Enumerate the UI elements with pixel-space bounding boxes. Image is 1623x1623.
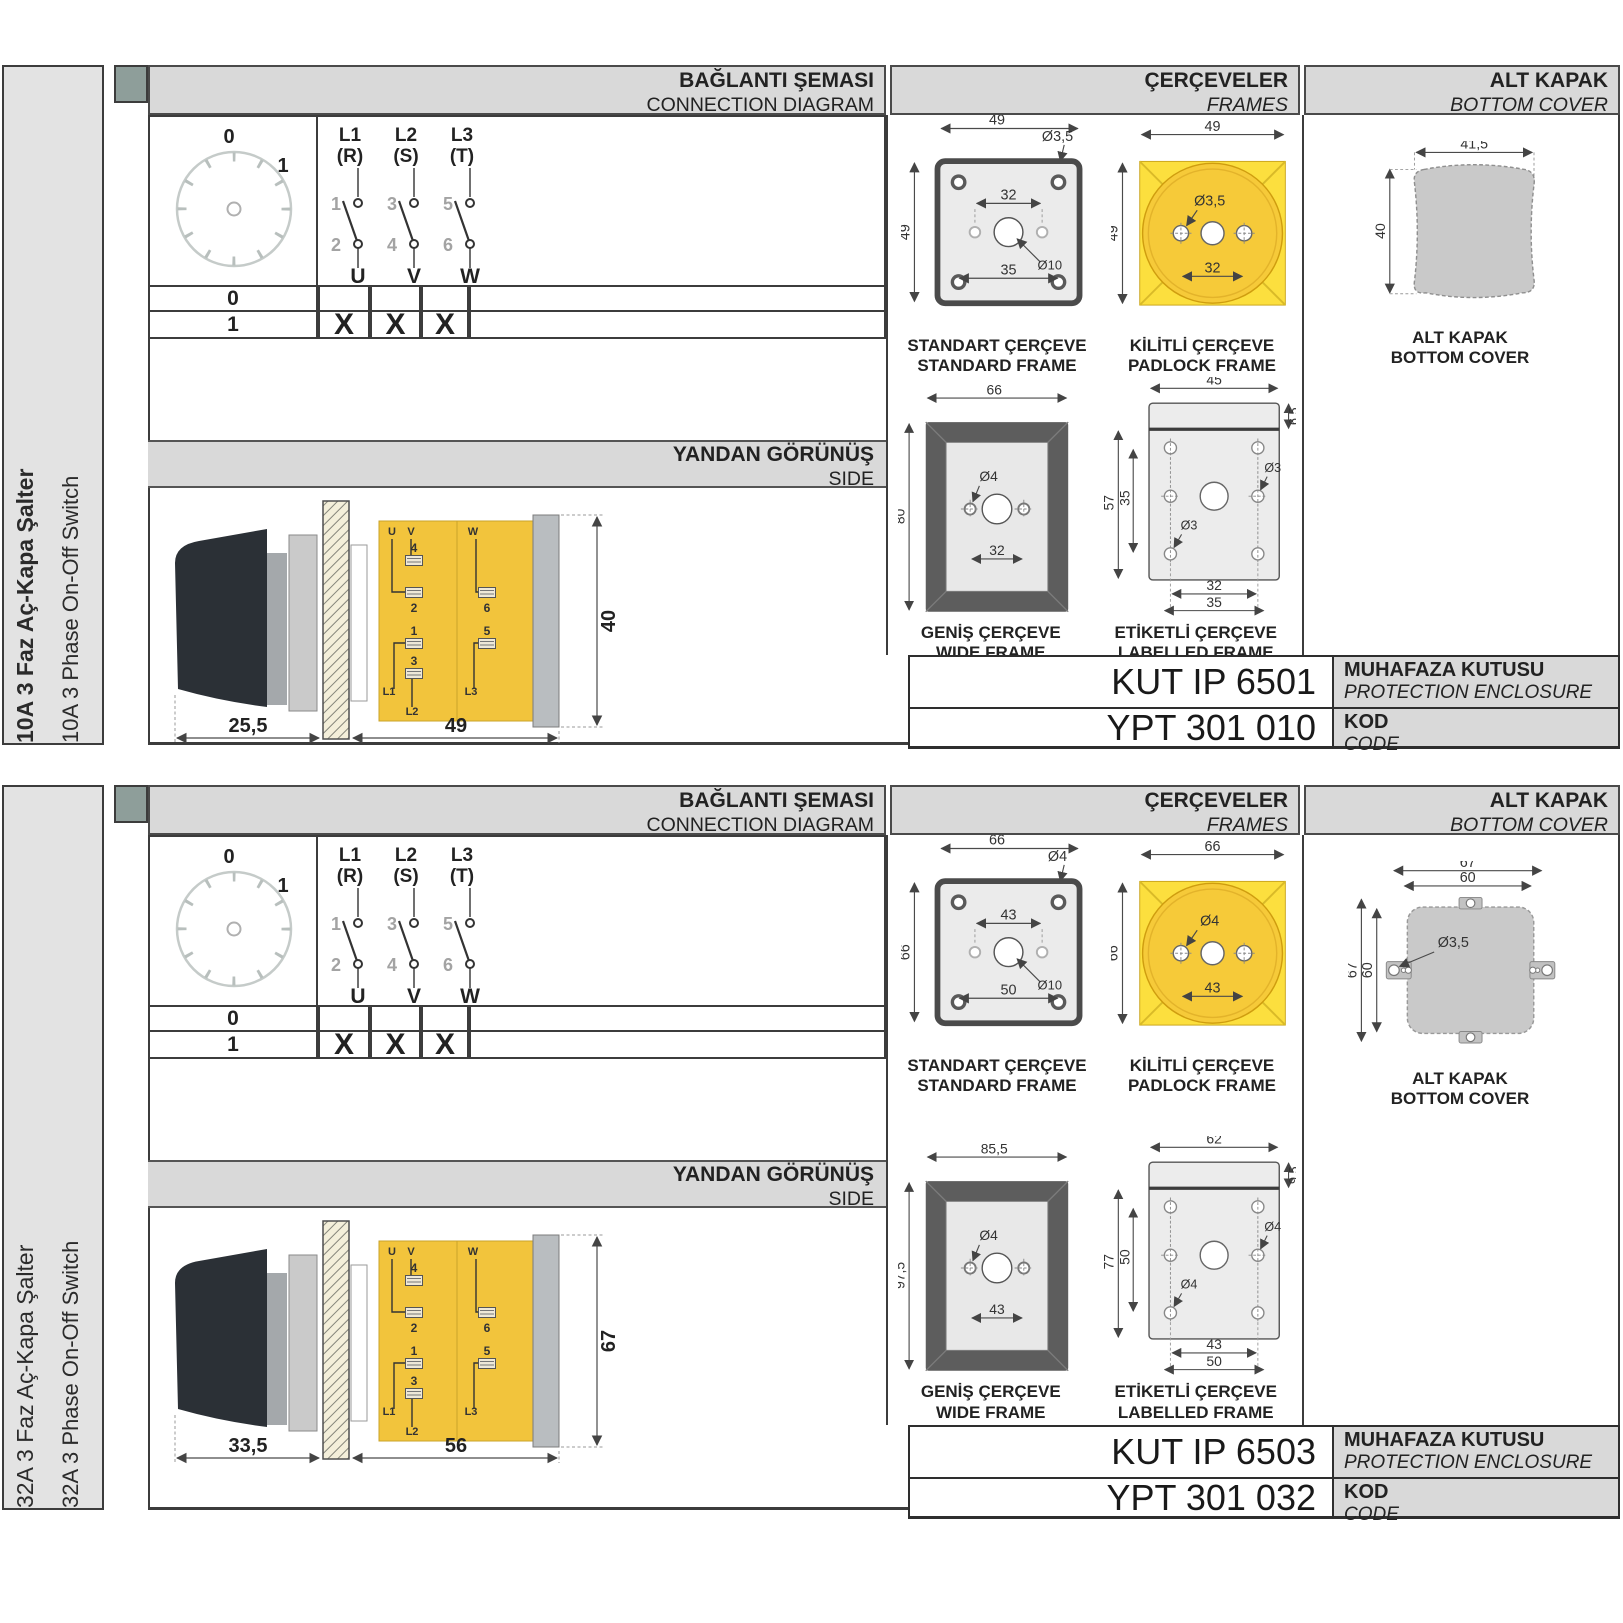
bottom-cover-figure: 41,5 40 41,5 40 (1308, 123, 1612, 369)
caption-en: PADLOCK FRAME (1111, 356, 1293, 376)
dim-label: 66 (1111, 945, 1122, 961)
dim-label: Ø4 (1200, 913, 1219, 929)
standard-frame-figure: 66 Ø4 66 43 Ø10 (901, 835, 1093, 1097)
divider-connection-frames (886, 835, 888, 1425)
header-frames: ÇERÇEVELER FRAMES (890, 785, 1300, 835)
dim-label: 32 (1205, 261, 1221, 277)
code-label: KOD CODE (1332, 1479, 1618, 1516)
dim-label: 66 (901, 944, 914, 960)
section-10a-switch: 10A 3 Faz Aç-Kapa Şalter 10A 3 Phase On-… (0, 65, 1623, 745)
caption-en: LABELLED FRAME (1096, 1403, 1296, 1423)
section-32a-switch: 32A 3 Faz Aç-Kapa Şalter 32A 3 Phase On-… (0, 785, 1623, 1510)
row-label: 0 (148, 285, 318, 312)
caption-tr: GENİŞ ÇERÇEVE (898, 623, 1083, 643)
panel-hatched (323, 501, 349, 739)
dim-label: 85,5 (981, 1144, 1008, 1156)
figure-caption: STANDART ÇERÇEVE STANDARD FRAME (901, 336, 1093, 377)
sidebar-title-english: 32A 3 Phase On-Off Switch (58, 787, 84, 1508)
dim-width: 56 (445, 1435, 467, 1457)
table-cell (469, 285, 886, 312)
contact-pole-3: L3 (T) 5 6 W (443, 125, 480, 285)
dim-label: 50 (1001, 982, 1017, 998)
padlock-frame-figure: 66 66 Ø4 (1111, 841, 1293, 1097)
padlock-frame-figure: 49 49 Ø3,5 (1111, 121, 1293, 377)
terminal-number: 2 (411, 601, 418, 615)
enclosure-code: KUT IP 6503 (910, 1427, 1332, 1477)
terminal-number: 1 (331, 914, 341, 934)
dim-label: 62 (1206, 1136, 1222, 1147)
product-code: YPT 301 010 (910, 709, 1332, 746)
caption-tr: STANDART ÇERÇEVE (901, 336, 1093, 356)
dim-label: 77 (1100, 1254, 1116, 1270)
frames-figures: 49 Ø3,5 49 32 Ø10 (892, 115, 1302, 655)
padlock-frame-drawing: 49 49 Ø3,5 (1111, 121, 1293, 334)
rotary-dial-diagram: 0 1 (150, 837, 316, 1005)
dim-label: 43 (1206, 1336, 1222, 1352)
caption-tr: ALT KAPAK (1308, 1069, 1612, 1089)
side-view-drawing: U V W 4 2 1 3 6 5 L1 L2 L3 40 2 (165, 495, 725, 747)
dim-label: 66 (1205, 841, 1221, 855)
dim-label: 6,5 (1287, 407, 1296, 424)
caption-en: BOTTOM COVER (1308, 348, 1612, 368)
header-connection-tr: BAĞLANTI ŞEMASI (150, 789, 874, 814)
catalog-page: { "s0": { "sidebar": { "tr": "10A 3 Faz … (0, 0, 1623, 1623)
caption-en: BOTTOM COVER (1308, 1089, 1612, 1109)
dial-position-0: 0 (223, 126, 234, 148)
switch-handle (175, 529, 267, 707)
terminal-number: 2 (331, 235, 341, 255)
terminal-number: 2 (411, 1321, 418, 1335)
header-cover-tr: ALT KAPAK (1306, 69, 1608, 94)
terminal-number: 4 (387, 955, 397, 975)
terminal-label: W (468, 1246, 479, 1258)
terminal-number: 4 (411, 1261, 418, 1275)
contact-pole-2: L2 (S) 3 4 V (387, 845, 421, 1005)
wide-frame-drawing: 85,5 97,5 Ø4 43 (898, 1144, 1083, 1380)
caption-en: WIDE FRAME (898, 1403, 1083, 1423)
terminal-label: V (407, 526, 415, 538)
dim-depth: 25,5 (229, 715, 268, 737)
output-label: W (460, 265, 480, 285)
terminal-number: 6 (443, 955, 453, 975)
dim-label: Ø10 (1038, 978, 1062, 993)
bottom-cover-drawing: 41,5 40 (1355, 141, 1565, 326)
contact-pole-3: L3 (T) 5 6 W (443, 845, 480, 1005)
x-mark: X (421, 310, 469, 339)
code-label-tr: KOD (1344, 711, 1618, 734)
end-cap (533, 1235, 559, 1447)
terminal-label: U (388, 526, 396, 538)
enclosure-label-en: PROTECTION ENCLOSURE (1344, 1452, 1618, 1474)
x-mark: X (421, 1030, 469, 1059)
terminal-number: 4 (411, 541, 418, 555)
enclosure-label-tr: MUHAFAZA KUTUSU (1344, 659, 1618, 682)
terminal-label: L2 (406, 706, 419, 718)
side-header-tr: YANDAN GÖRÜNÜŞ (148, 443, 874, 468)
terminal-number: 4 (387, 235, 397, 255)
code-label: KOD CODE (1332, 709, 1618, 746)
truth-table-row-0: 0 (148, 1005, 886, 1032)
header-side-view: YANDAN GÖRÜNÜŞ SIDE (148, 1160, 886, 1208)
dim-label: 43 (990, 1301, 1006, 1317)
pole-label: (T) (450, 146, 474, 167)
product-code: YPT 301 032 (910, 1479, 1332, 1516)
contacts-box: L1 (R) 1 2 U L2 (S) 3 4 (316, 115, 886, 287)
code-label-tr: KOD (1344, 1481, 1618, 1504)
output-label: U (350, 985, 365, 1005)
header-bottom-cover: ALT KAPAK BOTTOM COVER (1304, 65, 1620, 115)
dial-position-1: 1 (277, 155, 288, 177)
figure-caption: KİLİTLİ ÇERÇEVE PADLOCK FRAME (1111, 336, 1293, 377)
divider-frames-cover (1302, 115, 1304, 655)
terminal-label: L1 (383, 1406, 396, 1418)
truth-table-row-1: 1 X X X (148, 310, 886, 339)
terminal-label: L1 (383, 686, 396, 698)
standard-frame-figure: 49 Ø3,5 49 32 Ø10 (901, 115, 1093, 377)
enclosure-row: KUT IP 6501 MUHAFAZA KUTUSU PROTECTION E… (908, 655, 1620, 709)
dim-label: 32 (990, 542, 1006, 558)
dim-label: Ø4 (1048, 849, 1067, 865)
terminal-number: 6 (484, 1321, 491, 1335)
cover-outline (1414, 165, 1534, 298)
divider-frames-cover (1302, 835, 1304, 1425)
dim-width: 49 (445, 715, 467, 737)
caption-en: STANDARD FRAME (901, 356, 1093, 376)
dim-label: Ø3,5 (1194, 193, 1225, 209)
terminal-number: 5 (484, 624, 491, 638)
terminal-label: L3 (465, 686, 478, 698)
sidebar: 32A 3 Faz Aç-Kapa Şalter 32A 3 Phase On-… (2, 785, 104, 1510)
dim-label: 57 (1100, 495, 1116, 511)
enclosure-label: MUHAFAZA KUTUSU PROTECTION ENCLOSURE (1332, 657, 1618, 707)
rotary-dial-diagram: 0 1 (150, 117, 316, 285)
dim-label: Ø3 (1264, 461, 1281, 475)
pole-label: L3 (451, 125, 473, 146)
row-label: 1 (148, 1030, 318, 1059)
truth-table-row-1: 1 X X X (148, 1030, 886, 1059)
figure-caption: GENİŞ ÇERÇEVE WIDE FRAME (898, 1382, 1083, 1423)
header-frames-en: FRAMES (892, 94, 1288, 117)
divider-connection-frames (886, 115, 888, 655)
side-header-en: SIDE (148, 468, 874, 491)
dim-label: Ø3 (1180, 518, 1197, 532)
terminal-label: W (468, 526, 479, 538)
dim-label: Ø4 (1264, 1220, 1281, 1234)
terminal-label: L2 (406, 1426, 419, 1438)
terminal-number: 6 (484, 601, 491, 615)
terminal-number: 3 (387, 194, 397, 214)
header-frames: ÇERÇEVELER FRAMES (890, 65, 1300, 115)
contact-pole-2: L2 (S) 3 4 V (387, 125, 421, 285)
x-mark: X (318, 310, 370, 339)
caption-tr: ETİKETLİ ÇERÇEVE (1096, 1382, 1296, 1402)
dim-label: 45 (1206, 377, 1222, 388)
product-codes-table: KUT IP 6501 MUHAFAZA KUTUSU PROTECTION E… (908, 655, 1620, 749)
dim-label: 80 (898, 508, 907, 524)
dim-depth: 33,5 (229, 1435, 268, 1457)
standard-frame-drawing: 49 Ø3,5 49 32 Ø10 (901, 115, 1093, 334)
side-view-drawing: U V W 4 2 1 3 6 5 L1 L2 L3 67 3 (165, 1215, 725, 1467)
dial-position-0: 0 (223, 846, 234, 868)
dim-label: 60 (1459, 870, 1475, 886)
header-cover-en: BOTTOM COVER (1306, 94, 1608, 117)
dim-label: 9,5 (1287, 1167, 1296, 1184)
panel-hatched (323, 1221, 349, 1459)
padlock-frame-drawing: 66 66 Ø4 (1111, 841, 1293, 1054)
side-header-tr: YANDAN GÖRÜNÜŞ (148, 1163, 874, 1188)
pole-label: L2 (395, 125, 417, 146)
dim-label: 49 (989, 115, 1005, 129)
output-label: V (407, 265, 421, 285)
terminal-number: 5 (443, 194, 453, 214)
caption-tr: KİLİTLİ ÇERÇEVE (1111, 336, 1293, 356)
row-label: 1 (148, 310, 318, 339)
terminal-number: 3 (387, 914, 397, 934)
dial-position-1: 1 (277, 875, 288, 897)
header-connection-en: CONNECTION DIAGRAM (150, 94, 874, 117)
sidebar-title-turkish: 32A 3 Faz Aç-Kapa Şalter (12, 787, 39, 1508)
dim-label: 66 (987, 385, 1003, 397)
dim-height: 67 (598, 1330, 620, 1352)
truth-table-row-0: 0 (148, 285, 886, 312)
wide-frame-figure: 85,5 97,5 Ø4 43 (898, 1144, 1083, 1423)
dim-label: Ø10 (1038, 258, 1062, 273)
dim-label: 67 (1348, 962, 1361, 978)
caption-tr: ALT KAPAK (1308, 328, 1612, 348)
sidebar-title-english: 10A 3 Phase On-Off Switch (58, 67, 84, 743)
corner-marker-square (114, 65, 148, 103)
caption-tr: GENİŞ ÇERÇEVE (898, 1382, 1083, 1402)
code-label-en: CODE (1344, 734, 1618, 756)
frames-figures: 66 Ø4 66 43 Ø10 (892, 835, 1302, 1423)
header-connection-tr: BAĞLANTI ŞEMASI (150, 69, 874, 94)
caption-tr: ETİKETLİ ÇERÇEVE (1096, 623, 1296, 643)
standard-frame-drawing: 66 Ø4 66 43 Ø10 (901, 835, 1093, 1054)
caption-tr: STANDART ÇERÇEVE (901, 1056, 1093, 1076)
code-label-en: CODE (1344, 1504, 1618, 1526)
dim-label: 66 (989, 835, 1005, 849)
wide-frame-figure: 66 80 Ø4 32 (898, 385, 1083, 664)
rotary-dial-box: 0 1 (148, 115, 318, 287)
code-row: YPT 301 010 KOD CODE (908, 709, 1620, 749)
dim-label: 32 (1001, 188, 1017, 204)
caption-en: PADLOCK FRAME (1111, 1076, 1293, 1096)
terminal-label: V (407, 1246, 415, 1258)
figure-caption: KİLİTLİ ÇERÇEVE PADLOCK FRAME (1111, 1056, 1293, 1097)
dim-label: 32 (1206, 577, 1222, 593)
dim-label: 41,5 (1460, 141, 1488, 153)
terminal-number: 5 (443, 914, 453, 934)
caption-en: STANDARD FRAME (901, 1076, 1093, 1096)
terminal-number: 6 (443, 235, 453, 255)
pole-label: L3 (451, 845, 473, 866)
mounting-plate (289, 535, 317, 711)
switch-body (379, 521, 533, 721)
header-frames-tr: ÇERÇEVELER (892, 789, 1288, 814)
caption-tr: KİLİTLİ ÇERÇEVE (1111, 1056, 1293, 1076)
labelled-frame-figure: 45 6,5 57 35 (1096, 377, 1296, 664)
dim-label: 50 (1206, 1353, 1222, 1369)
labelled-frame-figure: 62 9,5 77 50 (1096, 1136, 1296, 1423)
dim-label: 35 (1206, 594, 1222, 610)
labelled-frame-drawing: 62 9,5 77 50 (1096, 1136, 1296, 1380)
header-cover-en: BOTTOM COVER (1306, 814, 1608, 837)
enclosure-label-en: PROTECTION ENCLOSURE (1344, 682, 1618, 704)
terminal-number: 1 (411, 1344, 418, 1358)
output-label: U (350, 265, 365, 285)
labelled-frame-drawing: 45 6,5 57 35 (1096, 377, 1296, 621)
rotary-dial-box: 0 1 (148, 835, 318, 1007)
mounting-plate (289, 1255, 317, 1431)
dim-label: Ø4 (980, 468, 999, 484)
dim-label: 49 (901, 224, 914, 240)
enclosure-label: MUHAFAZA KUTUSU PROTECTION ENCLOSURE (1332, 1427, 1618, 1477)
header-cover-tr: ALT KAPAK (1306, 789, 1608, 814)
pole-label: (R) (337, 866, 363, 887)
enclosure-label-tr: MUHAFAZA KUTUSU (1344, 1429, 1618, 1452)
x-mark: X (318, 1030, 370, 1059)
switch-body (379, 1241, 533, 1441)
switch-contacts-diagram: L1 (R) 1 2 U L2 (S) 3 4 (318, 837, 884, 1005)
header-frames-en: FRAMES (892, 814, 1288, 837)
pole-label: (S) (393, 866, 418, 887)
pole-label: L1 (339, 845, 362, 866)
terminal-number: 2 (331, 955, 341, 975)
table-cell (469, 1005, 886, 1032)
dim-label: 50 (1116, 1249, 1132, 1265)
corner-marker-square (114, 785, 148, 823)
dim-label: Ø4 (1180, 1278, 1197, 1292)
dim-label: 35 (1001, 262, 1017, 278)
cover-caption: ALT KAPAK BOTTOM COVER (1308, 328, 1612, 369)
terminal-number: 1 (411, 624, 418, 638)
table-cell (469, 1030, 886, 1059)
side-header-en: SIDE (148, 1188, 874, 1211)
pole-label: (T) (450, 866, 474, 887)
switch-handle (175, 1249, 267, 1427)
output-label: V (407, 985, 421, 1005)
output-label: W (460, 985, 480, 1005)
dim-label: Ø4 (980, 1227, 999, 1243)
row-label: 0 (148, 1005, 318, 1032)
cover-outline (1407, 907, 1533, 1033)
pole-label: L1 (339, 125, 362, 146)
side-view-figure: U V W 4 2 1 3 6 5 L1 L2 L3 40 2 (165, 495, 725, 747)
enclosure-row: KUT IP 6503 MUHAFAZA KUTUSU PROTECTION E… (908, 1425, 1620, 1479)
terminal-label: L3 (465, 1406, 478, 1418)
contacts-box: L1 (R) 1 2 U L2 (S) 3 4 (316, 835, 886, 1007)
dim-height: 40 (598, 610, 620, 632)
cover-caption: ALT KAPAK BOTTOM COVER (1308, 1069, 1612, 1110)
product-codes-table: KUT IP 6503 MUHAFAZA KUTUSU PROTECTION E… (908, 1425, 1620, 1519)
x-mark: X (370, 310, 421, 339)
terminal-label: U (388, 1246, 396, 1258)
header-frames-tr: ÇERÇEVELER (892, 69, 1288, 94)
dim-label: 40 (1373, 223, 1389, 239)
code-row: YPT 301 032 KOD CODE (908, 1479, 1620, 1519)
dim-label: Ø3,5 (1437, 935, 1468, 951)
switch-contacts-diagram: L1 (R) 1 2 U L2 (S) 3 4 (318, 117, 884, 285)
header-side-view: YANDAN GÖRÜNÜŞ SIDE (148, 440, 886, 488)
x-mark: X (370, 1030, 421, 1059)
contact-pole-1: L1 (R) 1 2 U (331, 845, 366, 1005)
bottom-cover-drawing: 67 60 67 60 Ø3,5 (1348, 861, 1573, 1067)
header-connection-diagram: BAĞLANTI ŞEMASI CONNECTION DIAGRAM (148, 65, 886, 115)
side-view-figure: U V W 4 2 1 3 6 5 L1 L2 L3 67 3 (165, 1215, 725, 1467)
table-cell (469, 310, 886, 339)
contact-pole-1: L1 (R) 1 2 U (331, 125, 366, 285)
pole-label: (R) (337, 146, 363, 167)
terminal-number: 1 (331, 194, 341, 214)
dim-label: 97,5 (898, 1262, 907, 1289)
figure-caption: ETİKETLİ ÇERÇEVE LABELLED FRAME (1096, 1382, 1296, 1423)
dim-label: 43 (1001, 908, 1017, 924)
dim-label: Ø3,5 (1042, 129, 1073, 145)
dim-label: 49 (1111, 225, 1122, 241)
dim-label: 43 (1205, 981, 1221, 997)
header-connection-diagram: BAĞLANTI ŞEMASI CONNECTION DIAGRAM (148, 785, 886, 835)
dim-label: 49 (1205, 121, 1221, 135)
wide-frame-drawing: 66 80 Ø4 32 (898, 385, 1083, 621)
terminal-number: 3 (411, 654, 418, 668)
enclosure-code: KUT IP 6501 (910, 657, 1332, 707)
sidebar: 10A 3 Faz Aç-Kapa Şalter 10A 3 Phase On-… (2, 65, 104, 745)
dim-label: 60 (1359, 962, 1375, 978)
pole-label: (S) (393, 146, 418, 167)
bottom-cover-figure: 67 67 67 60 67 60 (1308, 843, 1612, 1110)
sidebar-title-turkish: 10A 3 Faz Aç-Kapa Şalter (12, 67, 39, 743)
header-connection-en: CONNECTION DIAGRAM (150, 814, 874, 837)
pole-label: L2 (395, 845, 417, 866)
header-bottom-cover: ALT KAPAK BOTTOM COVER (1304, 785, 1620, 835)
terminal-number: 5 (484, 1344, 491, 1358)
dim-label: 35 (1116, 490, 1132, 506)
figure-caption: STANDART ÇERÇEVE STANDARD FRAME (901, 1056, 1093, 1097)
end-cap (533, 515, 559, 727)
terminal-number: 3 (411, 1374, 418, 1388)
